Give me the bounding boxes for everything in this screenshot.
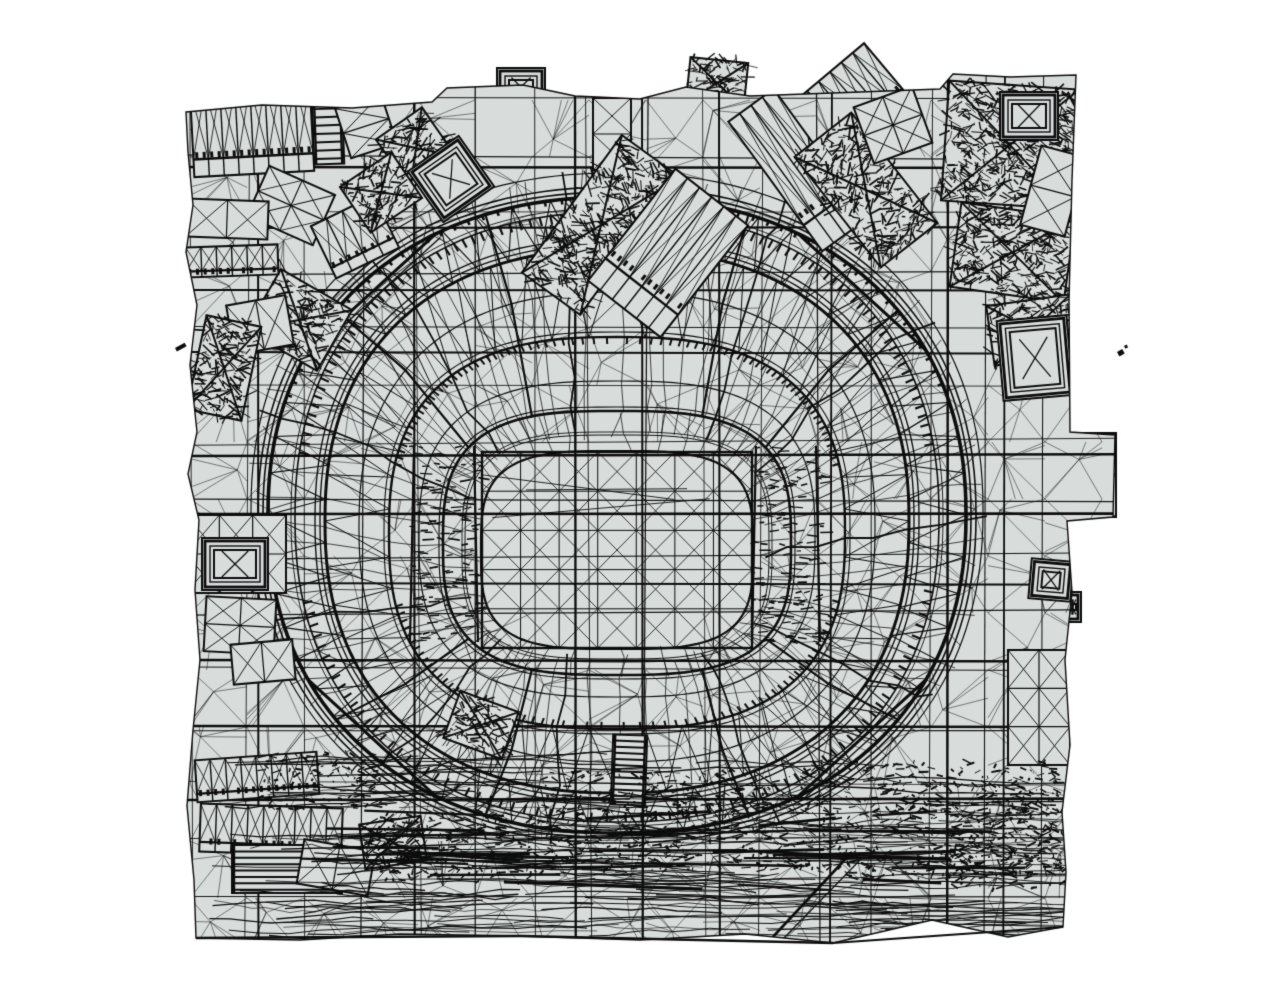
mesh-viewport [0, 0, 1271, 1007]
wireframe-mesh-render[interactable] [0, 0, 1271, 1007]
